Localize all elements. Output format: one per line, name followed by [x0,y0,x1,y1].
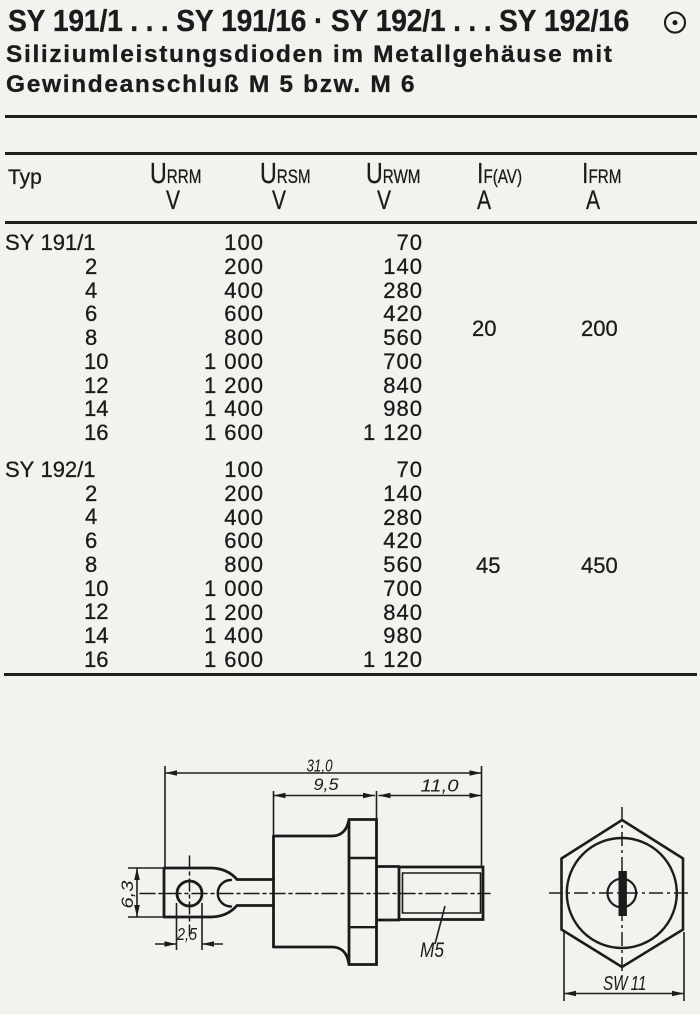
svg-text:SW 11: SW 11 [603,973,647,995]
svg-text:11,0: 11,0 [421,776,459,796]
svg-text:31,0: 31,0 [307,756,333,776]
svg-text:2,5: 2,5 [176,924,197,944]
svg-text:9,5: 9,5 [314,776,340,794]
svg-text:6,3: 6,3 [119,879,137,908]
svg-text:M5: M5 [420,939,444,962]
